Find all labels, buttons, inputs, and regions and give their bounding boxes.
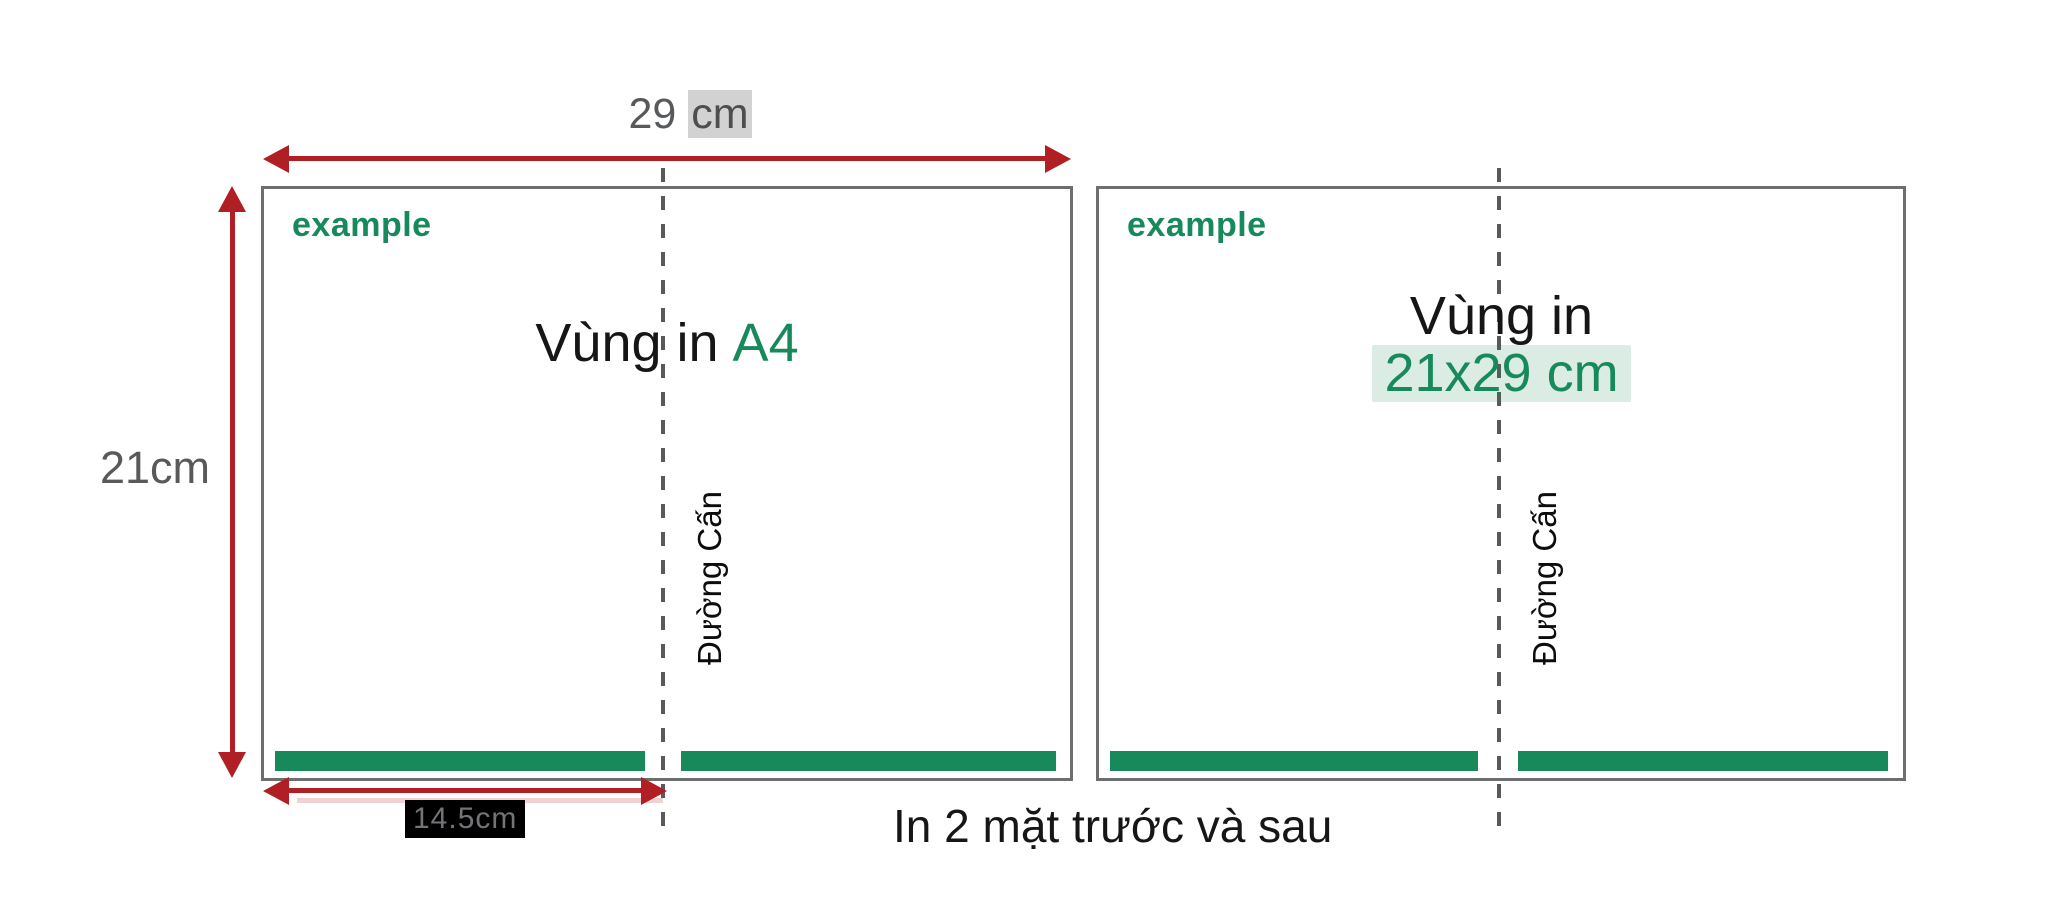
arrowhead-right-icon <box>1045 145 1071 173</box>
footer-bar <box>1518 751 1888 771</box>
fold-line-label-back: Đường Cấn <box>1525 468 1565 688</box>
half-width-arrow <box>287 788 643 793</box>
half-width-dimension-label: 14.5cm <box>405 800 525 838</box>
sheet-back <box>1096 186 1906 781</box>
fold-line-front <box>661 168 665 832</box>
brand-text-front: example <box>292 206 432 245</box>
height-dimension-label: 21cm <box>100 442 210 494</box>
print-layout-diagram: Đường Cấn Đường Cấn example example Vùng… <box>0 0 2048 900</box>
caption-text: In 2 mặt trước và sau <box>893 799 1307 853</box>
print-area-title-text: Vùng in <box>535 313 718 373</box>
width-unit: cm <box>688 90 751 138</box>
height-arrow <box>230 208 235 754</box>
fold-line-back <box>1497 168 1501 832</box>
fold-line-label-front: Đường Cấn <box>690 468 730 688</box>
arrowhead-right-icon <box>641 777 667 805</box>
width-value: 29 <box>628 90 676 138</box>
brand-text-back: example <box>1127 206 1267 245</box>
arrowhead-down-icon <box>218 752 246 778</box>
print-area-title-back: Vùng in 21x29 cm <box>1099 288 1904 402</box>
width-dimension-label: 29 cm <box>590 90 790 139</box>
arrowhead-left-icon <box>263 145 289 173</box>
arrowhead-left-icon <box>263 777 289 805</box>
footer-bar <box>275 751 645 771</box>
print-area-size-highlight: 21x29 cm <box>1372 345 1630 402</box>
footer-bar <box>1110 751 1478 771</box>
sheet-front <box>261 186 1073 781</box>
arrowhead-up-icon <box>218 186 246 212</box>
print-area-title-front: Vùng inA4 <box>264 312 1070 374</box>
width-arrow <box>287 156 1049 161</box>
print-area-title-text: Vùng in <box>1099 288 1904 345</box>
footer-bar <box>681 751 1056 771</box>
print-area-format-highlight: A4 <box>733 313 799 373</box>
